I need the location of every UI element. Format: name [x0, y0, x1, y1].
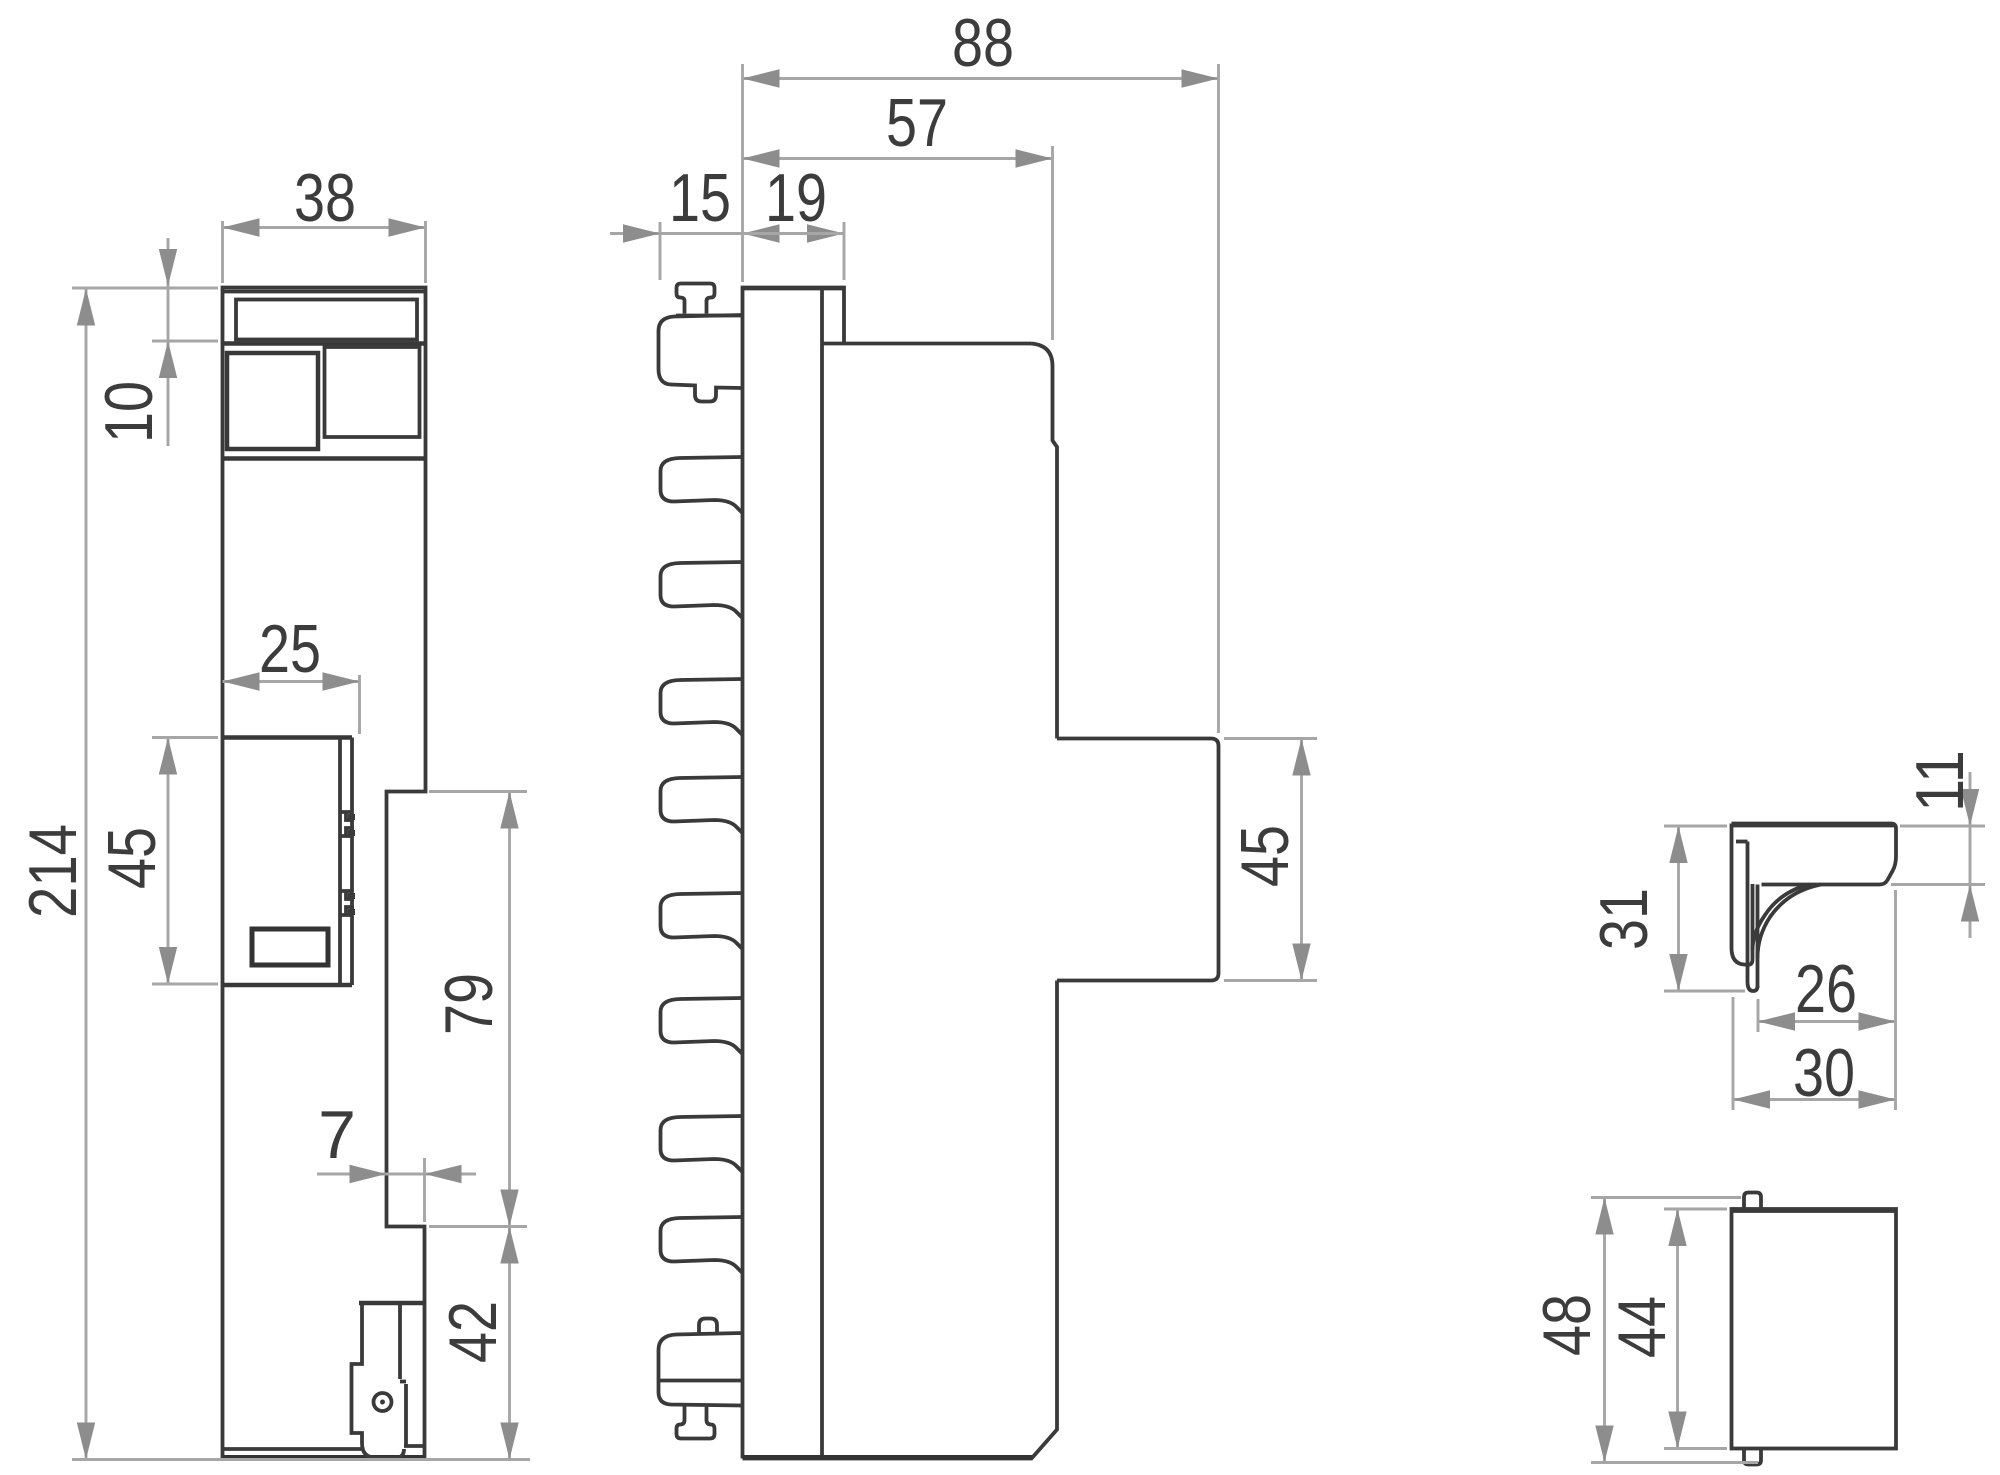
svg-text:44: 44 — [1604, 1296, 1680, 1358]
svg-text:31: 31 — [1586, 888, 1662, 950]
svg-text:38: 38 — [294, 160, 356, 236]
svg-text:10: 10 — [91, 381, 167, 443]
svg-text:45: 45 — [94, 827, 170, 889]
svg-text:48: 48 — [1529, 1294, 1605, 1356]
svg-text:19: 19 — [765, 160, 827, 236]
svg-text:42: 42 — [435, 1301, 511, 1363]
svg-text:79: 79 — [431, 973, 507, 1035]
svg-text:45: 45 — [1227, 825, 1303, 887]
svg-text:30: 30 — [1793, 1035, 1855, 1111]
svg-text:57: 57 — [886, 85, 948, 161]
svg-text:11: 11 — [1902, 750, 1978, 812]
svg-text:88: 88 — [952, 5, 1014, 81]
svg-text:7: 7 — [318, 1097, 356, 1173]
svg-text:26: 26 — [1795, 951, 1857, 1027]
svg-text:25: 25 — [259, 611, 321, 687]
svg-text:214: 214 — [15, 824, 91, 918]
svg-text:15: 15 — [669, 160, 731, 236]
